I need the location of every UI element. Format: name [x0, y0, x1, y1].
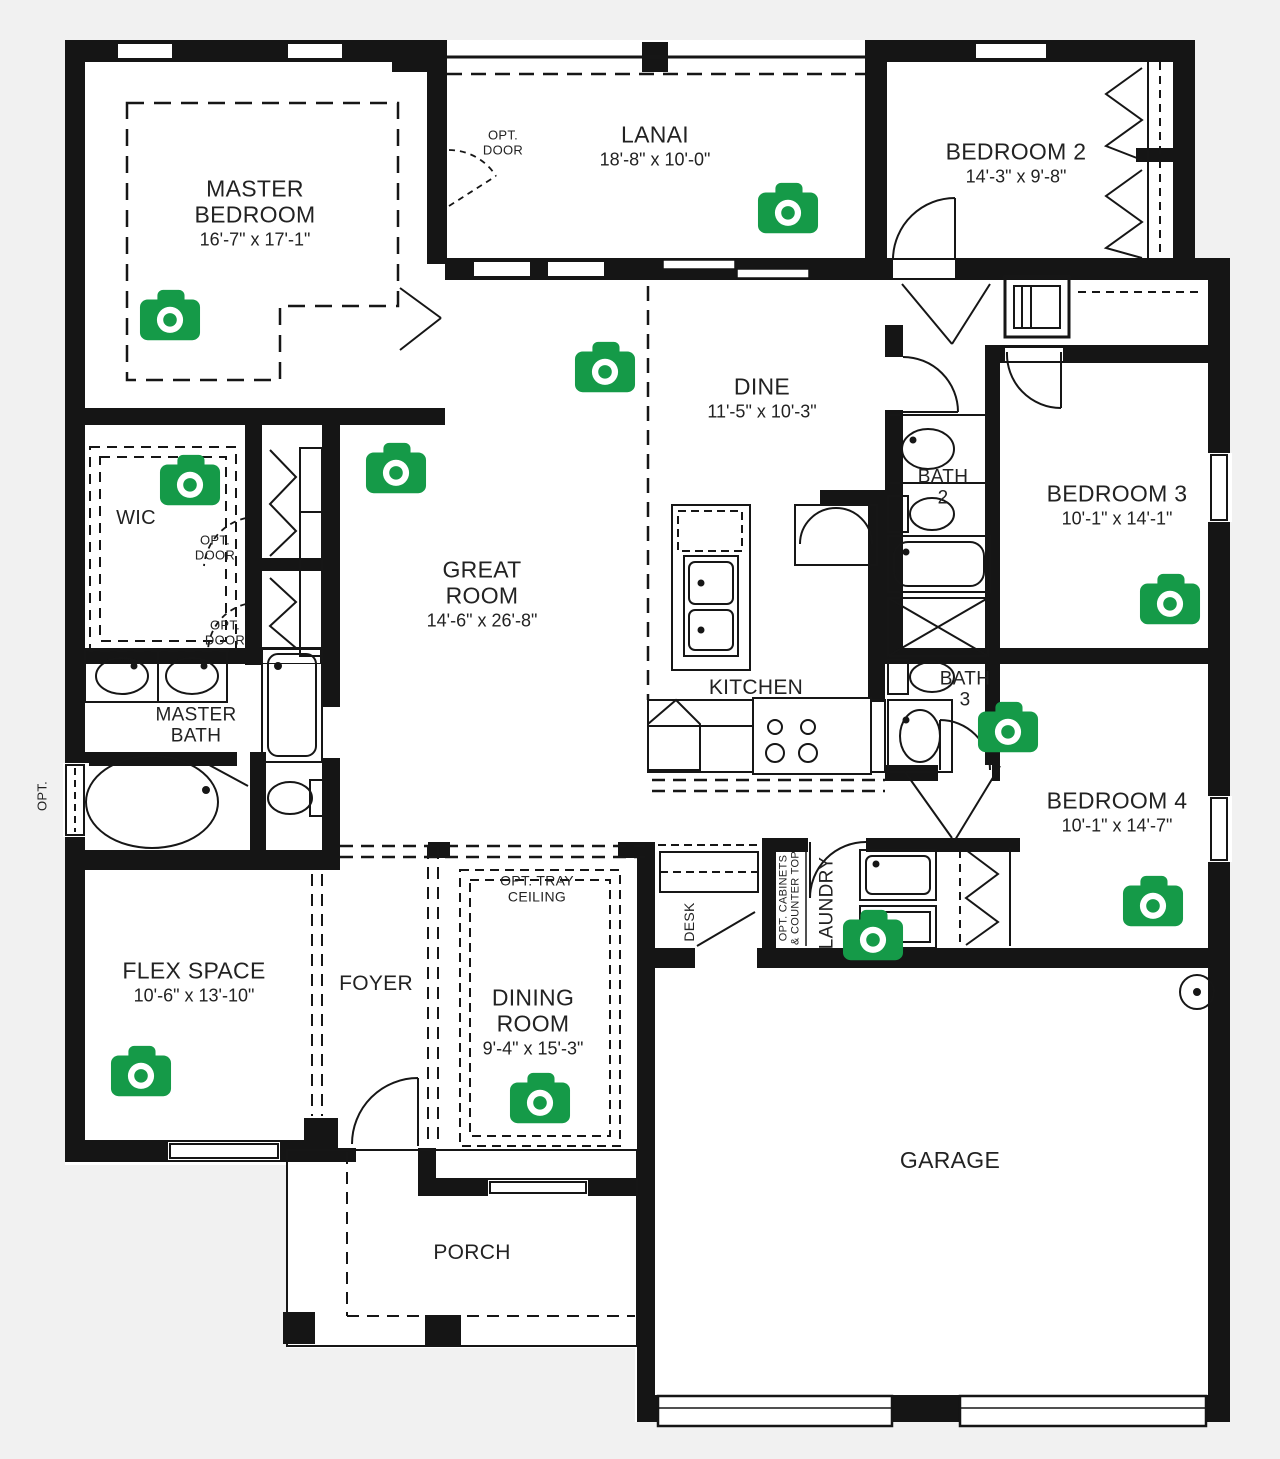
label-line: FOYER: [339, 972, 413, 996]
camera-glyph: [509, 1072, 571, 1125]
label-line: OPT.: [36, 781, 51, 811]
label-line: BEDROOM 3: [1047, 482, 1188, 508]
label-dimensions: 14'-6" x 26'-8": [427, 610, 538, 630]
label-foyer: FOYER: [339, 972, 413, 996]
label-bedroom-4: BEDROOM 410'-1" x 14'-7": [1047, 789, 1188, 836]
label-opt-window: OPT.: [36, 781, 51, 811]
label-flex-space: FLEX SPACE10'-6" x 13'-10": [122, 959, 265, 1006]
label-dimensions: 9'-4" x 15'-3": [483, 1038, 584, 1058]
camera-glyph: [757, 182, 819, 235]
label-line: DOOR: [195, 548, 235, 563]
camera-glyph: [139, 289, 201, 342]
camera-glyph: [977, 701, 1039, 754]
camera-glyph: [574, 341, 636, 394]
label-line: BEDROOM 4: [1047, 789, 1188, 815]
label-desk: DESK: [682, 902, 698, 941]
label-line: DESK: [682, 902, 698, 941]
label-line: OPT. CABINETS: [778, 851, 790, 945]
camera-icon-bedroom-4[interactable]: [1122, 875, 1184, 928]
label-wic: WIC: [116, 507, 156, 529]
label-dimensions: 16'-7" x 17'-1": [195, 229, 316, 249]
label-porch: PORCH: [433, 1241, 510, 1265]
label-dimensions: 10'-6" x 13'-10": [122, 985, 265, 1005]
label-opt-door-lanai: OPT.DOOR: [483, 128, 523, 157]
label-line: & COUNTER TOP: [790, 851, 802, 945]
floorplan: MASTERBEDROOM16'-7" x 17'-1"LANAI18'-8" …: [0, 0, 1280, 1459]
camera-glyph: [159, 454, 221, 507]
label-line: ROOM: [427, 583, 538, 609]
camera-icon-dine[interactable]: [574, 341, 636, 394]
camera-glyph: [1139, 573, 1201, 626]
camera-glyph: [1122, 875, 1184, 928]
label-line: BATH: [156, 726, 237, 747]
label-line: LAUNDRY: [816, 857, 837, 950]
label-line: WIC: [116, 507, 156, 529]
label-line: MASTER: [156, 705, 237, 726]
label-line: OPT. TRAY: [500, 873, 574, 889]
label-dimensions: 18'-8" x 10'-0": [600, 149, 711, 169]
label-opt-cabinets: OPT. CABINETS& COUNTER TOP: [778, 851, 803, 945]
label-line: BATH: [940, 669, 990, 690]
camera-glyph: [110, 1045, 172, 1098]
label-line: CEILING: [500, 889, 574, 905]
label-dimensions: 10'-1" x 14'-1": [1047, 508, 1188, 528]
label-laundry: LAUNDRY: [816, 857, 837, 950]
label-master-bedroom: MASTERBEDROOM16'-7" x 17'-1": [195, 177, 316, 250]
label-line: BATH: [918, 467, 968, 488]
label-bedroom-3: BEDROOM 310'-1" x 14'-1": [1047, 482, 1188, 529]
camera-icon-master-bedroom[interactable]: [139, 289, 201, 342]
label-opt-tray-ceiling: OPT. TRAYCEILING: [500, 873, 574, 904]
label-line: FLEX SPACE: [122, 959, 265, 985]
camera-icon-lanai[interactable]: [757, 182, 819, 235]
label-line: ROOM: [483, 1011, 584, 1037]
label-lanai: LANAI18'-8" x 10'-0": [600, 123, 711, 170]
label-garage: GARAGE: [900, 1148, 1000, 1174]
label-bath-2: BATH2: [918, 467, 968, 510]
label-dine: DINE11'-5" x 10'-3": [707, 375, 816, 422]
label-line: GARAGE: [900, 1148, 1000, 1174]
camera-icon-bedroom-3[interactable]: [1139, 573, 1201, 626]
camera-icon-laundry[interactable]: [842, 909, 904, 962]
label-line: 2: [918, 488, 968, 509]
label-line: KITCHEN: [709, 676, 803, 700]
camera-icon-dining-room[interactable]: [509, 1072, 571, 1125]
label-line: MASTER: [195, 177, 316, 203]
label-line: BEDROOM: [195, 202, 316, 228]
label-master-bath: MASTERBATH: [156, 705, 237, 748]
camera-icon-bath-3[interactable]: [977, 701, 1039, 754]
label-line: OPT.: [195, 533, 235, 548]
label-line: OPT.: [205, 618, 245, 633]
label-line: OPT.: [483, 128, 523, 143]
label-line: BEDROOM 2: [946, 140, 1087, 166]
label-kitchen: KITCHEN: [709, 676, 803, 700]
label-line: DINING: [483, 986, 584, 1012]
label-line: PORCH: [433, 1241, 510, 1265]
label-line: DOOR: [205, 633, 245, 648]
label-line: DOOR: [483, 143, 523, 158]
label-great-room: GREATROOM14'-6" x 26'-8": [427, 558, 538, 631]
camera-icon-great-room[interactable]: [365, 442, 427, 495]
label-dining-room: DININGROOM9'-4" x 15'-3": [483, 986, 584, 1059]
label-dimensions: 11'-5" x 10'-3": [707, 401, 816, 421]
label-dimensions: 14'-3" x 9'-8": [946, 166, 1087, 186]
label-bedroom-2: BEDROOM 214'-3" x 9'-8": [946, 140, 1087, 187]
camera-glyph: [365, 442, 427, 495]
label-opt-door-1: OPT.DOOR: [195, 533, 235, 562]
camera-icon-wic[interactable]: [159, 454, 221, 507]
label-line: DINE: [707, 375, 816, 401]
label-opt-door-2: OPT.DOOR: [205, 618, 245, 647]
label-line: LANAI: [600, 123, 711, 149]
label-dimensions: 10'-1" x 14'-7": [1047, 815, 1188, 835]
camera-icon-flex-space[interactable]: [110, 1045, 172, 1098]
camera-glyph: [842, 909, 904, 962]
label-line: GREAT: [427, 558, 538, 584]
